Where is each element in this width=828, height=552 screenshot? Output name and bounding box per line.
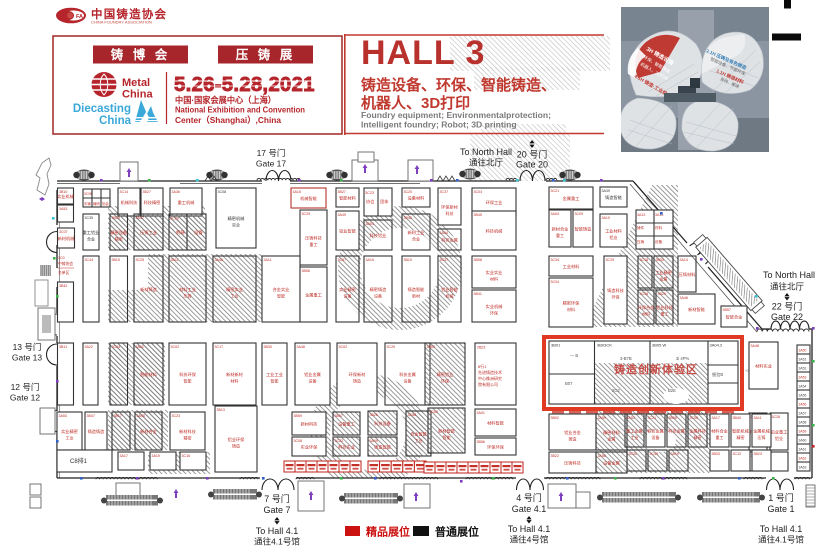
svg-text:3A11: 3A11 [754, 416, 762, 420]
svg-text:3C29: 3C29 [606, 258, 615, 262]
svg-text:新材智能: 新材智能 [438, 428, 456, 435]
svg-text:3B50: 3B50 [427, 345, 435, 349]
svg-text:3A13: 3A13 [637, 213, 645, 217]
svg-text:3C37: 3C37 [440, 258, 449, 262]
svg-text:3C26: 3C26 [772, 415, 781, 419]
svg-text:Gate 1: Gate 1 [767, 504, 794, 514]
svg-text:3B22: 3B22 [551, 454, 559, 458]
svg-text:精密: 精密 [694, 434, 702, 440]
svg-text:12 号门: 12 号门 [11, 382, 40, 392]
svg-text:科技金属: 科技金属 [668, 428, 685, 435]
svg-text:To Hall 4.1: To Hall 4.1 [508, 524, 551, 534]
svg-text:3A53: 3A53 [59, 414, 67, 418]
svg-text:材料: 材料 [490, 276, 498, 282]
svg-text:3A63: 3A63 [799, 466, 807, 470]
svg-text:To Hall 4.1: To Hall 4.1 [760, 524, 803, 534]
svg-text:重工: 重工 [661, 311, 669, 317]
svg-text:3B19: 3B19 [404, 258, 412, 262]
svg-text:3A52: 3A52 [799, 367, 807, 371]
svg-text:3-B7B: 3-B7B [620, 356, 632, 361]
svg-text:3A49: 3A49 [338, 213, 346, 217]
svg-text:铸造创新体验区: 铸造创新体验区 [614, 362, 698, 376]
svg-text:普通展位: 普通展位 [435, 525, 479, 539]
svg-text:3A59: 3A59 [799, 430, 807, 434]
svg-text:精密: 精密 [115, 236, 123, 242]
svg-text:3A15: 3A15 [293, 190, 301, 194]
svg-text:3C49: 3C49 [650, 452, 659, 456]
svg-text:3C21: 3C21 [551, 189, 560, 193]
svg-text:3C21: 3C21 [648, 416, 657, 420]
svg-text:中铸协会: 中铸协会 [58, 261, 73, 266]
svg-text:3C44: 3C44 [85, 258, 94, 262]
svg-text:3C08: 3C08 [294, 439, 303, 443]
svg-text:机械科技: 机械科技 [121, 199, 139, 206]
svg-text:3B01: 3B01 [551, 343, 561, 348]
svg-text:设备: 设备 [404, 378, 412, 384]
svg-text:环保新材: 环保新材 [441, 204, 458, 211]
svg-text:3A61: 3A61 [799, 448, 807, 452]
svg-text:智能材料: 智能材料 [339, 195, 357, 202]
svg-text:金属重工: 金属重工 [305, 292, 322, 299]
svg-text:智能: 智能 [443, 434, 451, 440]
svg-text:金属: 金属 [660, 276, 668, 282]
svg-text:环保: 环保 [441, 378, 449, 384]
svg-text:3A17: 3A17 [712, 416, 720, 420]
svg-text:铝业: 铝业 [775, 435, 783, 441]
svg-text:3A22: 3A22 [85, 345, 93, 349]
svg-text:通往4号馆: 通往4号馆 [510, 535, 549, 545]
svg-text:科技环保: 科技环保 [179, 371, 197, 378]
svg-text:3C02: 3C02 [339, 345, 348, 349]
svg-text:工业: 工业 [66, 435, 74, 441]
svg-text:Gate 7: Gate 7 [263, 505, 290, 515]
svg-text:工业: 工业 [415, 437, 423, 443]
svg-text:3C58: 3C58 [640, 292, 649, 296]
svg-text:新材合金: 新材合金 [552, 226, 570, 233]
svg-text:铝业环保: 铝业环保 [228, 436, 246, 443]
svg-text:名单区: 名单区 [58, 270, 70, 275]
svg-text:环保合金: 环保合金 [638, 304, 656, 311]
svg-text:设备金属: 设备金属 [603, 460, 620, 467]
svg-text:3C22: 3C22 [335, 439, 344, 443]
svg-text:5.26-5.28,2021: 5.26-5.28,2021 [174, 73, 315, 96]
svg-text:1 号门: 1 号门 [768, 492, 794, 503]
svg-text:压铸科技: 压铸科技 [305, 235, 323, 242]
svg-text:3A04: 3A04 [551, 212, 559, 216]
svg-text:新材智能: 新材智能 [688, 306, 706, 313]
svg-text:3A39: 3A39 [602, 189, 610, 193]
svg-text:铸造智能: 铸造智能 [605, 194, 623, 201]
svg-text:3B26: 3B26 [370, 413, 378, 417]
svg-text:材料: 材料 [655, 225, 663, 230]
svg-text:中铸: 中铸 [84, 201, 91, 206]
svg-text:铸造智能: 铸造智能 [374, 444, 392, 451]
svg-text:铝业科技: 铝业科技 [656, 304, 674, 311]
svg-text:17 号门: 17 号门 [257, 148, 286, 158]
svg-text:13 号门: 13 号门 [13, 342, 42, 352]
svg-text:Center（Shanghai）,China: Center（Shanghai）,China [175, 115, 281, 125]
svg-text:新材工业: 新材工业 [408, 229, 425, 236]
svg-text:China: China [122, 89, 153, 101]
svg-text:China: China [99, 115, 132, 127]
svg-text:3B19: 3B19 [112, 258, 120, 262]
svg-text:设备: 设备 [652, 434, 660, 440]
svg-text:3B05 W: 3B05 W [652, 343, 666, 348]
svg-text:机械: 机械 [446, 293, 454, 299]
svg-text:3B42: 3B42 [59, 284, 67, 288]
svg-text:3A17: 3A17 [120, 454, 128, 458]
svg-text:环保新材: 环保新材 [349, 371, 366, 378]
svg-text:材料实业: 材料实业 [755, 363, 772, 370]
svg-text:铸造: 铸造 [232, 443, 240, 449]
svg-text:设备: 设备 [344, 293, 352, 299]
svg-text:3C18: 3C18 [640, 258, 649, 262]
svg-text:3C23: 3C23 [172, 414, 181, 418]
svg-text:智能铸造: 智能铸造 [575, 226, 593, 233]
svg-text:8行1: 8行1 [478, 363, 487, 369]
svg-text:工业: 工业 [231, 293, 239, 299]
svg-text:实业机械: 实业机械 [57, 193, 75, 200]
svg-text:重工: 重工 [716, 434, 724, 440]
svg-text:通往北厅: 通往北厅 [770, 282, 805, 292]
svg-text:通往北厅: 通往北厅 [469, 158, 504, 168]
svg-text:实业: 实业 [232, 222, 240, 228]
svg-text:工业材料: 工业材料 [563, 263, 581, 270]
svg-text:3C35: 3C35 [85, 216, 94, 220]
svg-text:3C09: 3C09 [575, 212, 584, 216]
svg-text:铸造设备、环保、智能铸造、: 铸造设备、环保、智能铸造、 [361, 76, 556, 94]
svg-text:3B33: 3B33 [656, 258, 664, 262]
svg-text:新材机械: 新材机械 [58, 235, 76, 242]
svg-text:科技金属: 科技金属 [399, 371, 416, 378]
svg-text:协会: 协会 [102, 201, 109, 206]
svg-text:实业精密: 实业精密 [61, 428, 78, 435]
svg-text:3C58: 3C58 [408, 413, 417, 417]
svg-text:3A50: 3A50 [799, 349, 807, 353]
svg-text:铝业智能: 铝业智能 [339, 228, 357, 235]
svg-text:合金智能: 合金智能 [410, 431, 428, 438]
svg-text:3A54: 3A54 [799, 385, 807, 389]
svg-text:先进铸造技术: 先进铸造技术 [478, 369, 502, 375]
svg-text:压铸材料: 压铸材料 [679, 271, 697, 278]
svg-text:通往4.1号馆: 通往4.1号馆 [758, 535, 804, 545]
svg-text:3A01: 3A01 [136, 345, 144, 349]
svg-text:机铸: 机铸 [176, 229, 185, 236]
svg-text:3B30: 3B30 [264, 345, 272, 349]
svg-text:3A58: 3A58 [799, 421, 807, 425]
svg-text:3A11: 3A11 [264, 258, 272, 262]
svg-text:3A59: 3A59 [598, 416, 606, 420]
svg-text:3A56: 3A56 [799, 403, 807, 407]
svg-text:3B23: 3B23 [754, 452, 762, 456]
svg-text:3C20: 3C20 [404, 190, 413, 194]
svg-text:3C16: 3C16 [182, 454, 191, 458]
svg-text:3A48: 3A48 [297, 345, 305, 349]
svg-text:铸造: 铸造 [569, 436, 577, 442]
svg-text:金属重工: 金属重工 [563, 195, 580, 202]
svg-text:3A48: 3A48 [751, 344, 759, 348]
svg-text:2B23: 2B23 [477, 346, 485, 350]
svg-text:3A19: 3A19 [152, 454, 160, 458]
svg-text:铸研: 铸研 [93, 201, 100, 206]
svg-text:3B03: 3B03 [366, 222, 374, 226]
svg-text:铝业金属: 铝业金属 [304, 371, 321, 378]
svg-text:Metal: Metal [122, 77, 150, 89]
svg-text:3C14: 3C14 [120, 190, 129, 194]
svg-text:3B20: 3B20 [112, 216, 120, 220]
svg-text:设备重工: 设备重工 [338, 421, 355, 428]
svg-text:3C06: 3C06 [690, 416, 699, 420]
svg-text:科技机械: 科技机械 [486, 228, 504, 235]
svg-text:中心株洲研究: 中心株洲研究 [478, 375, 502, 381]
svg-text:3B56: 3B56 [477, 440, 485, 444]
svg-text:3B58: 3B58 [669, 416, 677, 420]
svg-text:金属机械: 金属机械 [753, 428, 771, 435]
svg-text:3B11: 3B11 [171, 258, 179, 262]
svg-text:3A36: 3A36 [172, 190, 180, 194]
svg-text:细信B: 细信B [712, 371, 723, 378]
svg-text:精密机械: 精密机械 [228, 215, 246, 222]
svg-text:2C2: 2C2 [612, 388, 620, 393]
svg-text:实业机械: 实业机械 [486, 303, 504, 310]
svg-text:智能: 智能 [184, 378, 192, 384]
svg-text:合金: 合金 [87, 236, 95, 242]
svg-text:C8排1: C8排1 [70, 457, 88, 465]
svg-text:3A53: 3A53 [799, 376, 807, 380]
svg-text:压铸: 压铸 [758, 434, 766, 440]
svg-text:3C12: 3C12 [733, 452, 742, 456]
svg-text:协会: 协会 [366, 198, 375, 205]
svg-text:智能材料: 智能材料 [140, 371, 158, 378]
svg-text:院有限公司: 院有限公司 [478, 381, 498, 387]
svg-text:3A55: 3A55 [799, 394, 807, 398]
svg-text:铸造铸造: 铸造铸造 [88, 428, 106, 435]
svg-text:合金: 合金 [412, 236, 420, 242]
svg-text:Gate 13: Gate 13 [12, 353, 43, 363]
svg-text:环保环保: 环保环保 [487, 444, 505, 451]
svg-text:科技铝业: 科技铝业 [370, 232, 387, 239]
svg-text:3B47: 3B47 [87, 414, 95, 418]
svg-text:铝业重工: 铝业重工 [771, 429, 788, 436]
svg-text:铸造智能: 铸造智能 [408, 286, 426, 293]
svg-text:铝业智能: 铝业智能 [441, 286, 459, 293]
svg-text:精密设备: 精密设备 [110, 229, 128, 236]
svg-text:合金实业: 合金实业 [273, 286, 290, 293]
svg-text:中国·国家会展中心（上海）: 中国·国家会展中心（上海） [175, 94, 276, 105]
svg-text:重工: 重工 [310, 241, 318, 247]
svg-text:铸 博 会: 铸 博 会 [111, 47, 170, 62]
svg-text:3B41: 3B41 [474, 292, 482, 296]
svg-text:3B27: 3B27 [338, 190, 346, 194]
svg-text:铸造: 铸造 [353, 378, 361, 384]
svg-text:To North Hall: To North Hall [763, 270, 815, 280]
svg-text:Gate 12: Gate 12 [10, 393, 41, 403]
svg-text:智能: 智能 [271, 378, 279, 384]
svg-text:实业实业: 实业实业 [486, 269, 503, 276]
svg-text:金属: 金属 [608, 436, 616, 442]
svg-text:3A58: 3A58 [598, 454, 606, 458]
svg-text:设备: 设备 [374, 293, 382, 299]
svg-text:20 号门: 20 号门 [517, 149, 548, 160]
svg-text:National Exhibition and Conven: National Exhibition and Convention [175, 105, 305, 115]
svg-text:B2E: B2E [668, 388, 676, 393]
svg-text:环保工业: 环保工业 [486, 199, 503, 206]
svg-text:3A57: 3A57 [799, 412, 807, 416]
svg-text:Diecasting: Diecasting [73, 103, 131, 115]
svg-text:3A45: 3A45 [137, 414, 145, 418]
svg-text:3A14: 3A14 [680, 258, 688, 262]
svg-text:精品展位: 精品展位 [366, 525, 410, 539]
svg-text:3C20: 3C20 [170, 217, 179, 221]
svg-text:重工铝业: 重工铝业 [83, 229, 100, 236]
svg-text:铸件: 铸件 [637, 225, 645, 230]
svg-text:压铸: 压铸 [184, 293, 192, 299]
svg-text:3C57: 3C57 [338, 258, 347, 262]
svg-text:实业精密: 实业精密 [339, 286, 356, 293]
svg-text:设备: 设备 [309, 378, 317, 384]
svg-text:3C02: 3C02 [171, 345, 180, 349]
svg-text:3A46: 3A46 [680, 296, 688, 300]
svg-text:3B13: 3B13 [217, 408, 225, 412]
svg-text:通往4.1号馆: 通往4.1号馆 [254, 537, 300, 547]
svg-text:3C20: 3C20 [387, 345, 396, 349]
svg-text:To Hall 4.1: To Hall 4.1 [256, 526, 299, 536]
svg-text:3C60: 3C60 [430, 410, 439, 414]
svg-text:3A19: 3A19 [671, 452, 679, 456]
svg-text:金属科技: 金属科技 [689, 428, 707, 435]
svg-text:压铸工业: 压铸工业 [140, 229, 157, 236]
svg-text:铝业: 铝业 [610, 234, 618, 240]
svg-text:3C0: 3C0 [58, 256, 65, 260]
svg-text:压铸: 压铸 [637, 239, 645, 244]
svg-text:压 铸 展: 压 铸 展 [236, 47, 295, 62]
svg-text:精密: 精密 [737, 434, 745, 440]
svg-text:团体: 团体 [380, 198, 389, 205]
svg-text:3B40: 3B40 [733, 416, 741, 420]
svg-text:精密: 精密 [184, 435, 192, 441]
svg-text:22 号门: 22 号门 [772, 301, 803, 312]
svg-text:设备: 设备 [655, 239, 663, 244]
svg-text:铝业合金: 铝业合金 [564, 429, 582, 436]
svg-text:智能: 智能 [277, 293, 285, 299]
svg-text:铸造科技: 铸造科技 [607, 287, 625, 294]
svg-text:新材科技: 新材科技 [179, 428, 197, 435]
svg-text:3C20: 3C20 [629, 452, 638, 456]
svg-text:实业环保: 实业环保 [301, 444, 319, 451]
svg-text:3B17: 3B17 [114, 414, 122, 418]
svg-text:Intelligent foundry; Robot; 3D: Intelligent foundry; Robot; 3D printing [361, 120, 517, 130]
svg-text:3C17: 3C17 [215, 345, 224, 349]
svg-text:3A51: 3A51 [799, 358, 807, 362]
svg-text:7 号门: 7 号门 [264, 493, 290, 504]
svg-text:工业: 工业 [631, 434, 639, 440]
svg-text:科技金属: 科技金属 [441, 237, 458, 244]
svg-text:新材铸造: 新材铸造 [140, 286, 158, 293]
svg-text:Gate 17: Gate 17 [256, 159, 287, 169]
svg-text:3B56: 3B56 [302, 269, 310, 273]
svg-text:Gate 22: Gate 22 [771, 312, 803, 322]
svg-text:To North Hall: To North Hall [460, 147, 512, 157]
svg-text:Gate 4.1: Gate 4.1 [512, 504, 547, 514]
svg-text:CHINA FOUNDRY ASSOCIATION: CHINA FOUNDRY ASSOCIATION [91, 20, 152, 25]
svg-text:B07: B07 [565, 381, 573, 386]
svg-text:新材: 新材 [412, 293, 420, 299]
svg-text:3B27: 3B27 [143, 190, 151, 194]
svg-text:3C04: 3C04 [551, 280, 560, 284]
svg-text:材料合金: 材料合金 [711, 428, 729, 435]
svg-text:智能合金: 智能合金 [726, 314, 744, 321]
svg-text:设备: 设备 [194, 229, 203, 236]
svg-text:精密环保: 精密环保 [563, 300, 581, 307]
svg-text:3C04: 3C04 [474, 190, 483, 194]
svg-text:3B29: 3B29 [658, 292, 666, 296]
svg-text:科技金属: 科技金属 [647, 428, 664, 435]
svg-text:环保: 环保 [612, 294, 620, 300]
svg-text:3A15: 3A15 [366, 258, 374, 262]
svg-text:材料: 材料 [231, 378, 239, 384]
svg-text:3A01: 3A01 [477, 411, 485, 415]
svg-text:3C25: 3C25 [136, 258, 145, 262]
svg-text:3C04: 3C04 [112, 345, 121, 349]
svg-text:3A53: 3A53 [627, 416, 635, 420]
svg-text:材料: 材料 [567, 306, 575, 312]
svg-text:重工金属: 重工金属 [626, 428, 643, 435]
svg-text:精密铸造: 精密铸造 [370, 286, 388, 293]
svg-text:3B57: 3B57 [335, 414, 343, 418]
svg-text:材料: 材料 [642, 311, 650, 317]
svg-text:材料工业: 材料工业 [179, 286, 196, 293]
svg-text:环保: 环保 [490, 310, 498, 316]
svg-text:3B45: 3B45 [404, 216, 412, 220]
svg-text:科技设备: 科技设备 [374, 420, 392, 427]
svg-text:新材科技: 新材科技 [301, 421, 319, 428]
svg-text:3A60: 3A60 [799, 439, 807, 443]
svg-text:3A54: 3A54 [440, 231, 448, 235]
svg-text:3C29: 3C29 [302, 212, 311, 216]
svg-text:重工: 重工 [556, 232, 564, 238]
svg-text:重工机械: 重工机械 [178, 199, 196, 206]
svg-text:3B03CK: 3B03CK [597, 343, 612, 348]
svg-text:3C07: 3C07 [59, 230, 68, 234]
svg-text:新材合金: 新材合金 [140, 428, 158, 435]
svg-text:3A62: 3A62 [799, 457, 807, 461]
svg-text:3C08: 3C08 [218, 190, 227, 194]
svg-text:3B02: 3B02 [551, 416, 559, 420]
svg-text:一 B: 一 B [570, 353, 578, 358]
svg-text:科技: 科技 [446, 210, 454, 216]
svg-text:3C23: 3C23 [365, 191, 374, 195]
svg-text:3B33: 3B33 [712, 452, 720, 456]
svg-text:3C37: 3C37 [440, 190, 449, 194]
svg-text:3B59: 3B59 [294, 414, 302, 418]
svg-text:3A37: 3A37 [136, 216, 144, 220]
svg-text:科技实业: 科技实业 [338, 444, 355, 451]
svg-text:压铸科技: 压铸科技 [564, 460, 582, 467]
svg-text:3A09: 3A09 [370, 439, 378, 443]
svg-text:精密材料: 精密材料 [603, 429, 621, 436]
svg-text:工业精密: 工业精密 [655, 269, 672, 276]
svg-text:3A04.2: 3A04.2 [710, 343, 723, 348]
svg-text:工业材料: 工业材料 [605, 228, 623, 235]
svg-text:材料智能: 材料智能 [487, 420, 505, 427]
svg-text:4 号门: 4 号门 [516, 492, 542, 503]
svg-text:机械智能: 机械智能 [300, 195, 318, 202]
svg-text:FA: FA [76, 14, 83, 20]
svg-text:精密实业: 精密实业 [226, 286, 243, 293]
svg-text:3A10: 3A10 [602, 216, 610, 220]
svg-text:设备材料: 设备材料 [408, 195, 426, 202]
svg-text:智能机械: 智能机械 [732, 428, 750, 435]
